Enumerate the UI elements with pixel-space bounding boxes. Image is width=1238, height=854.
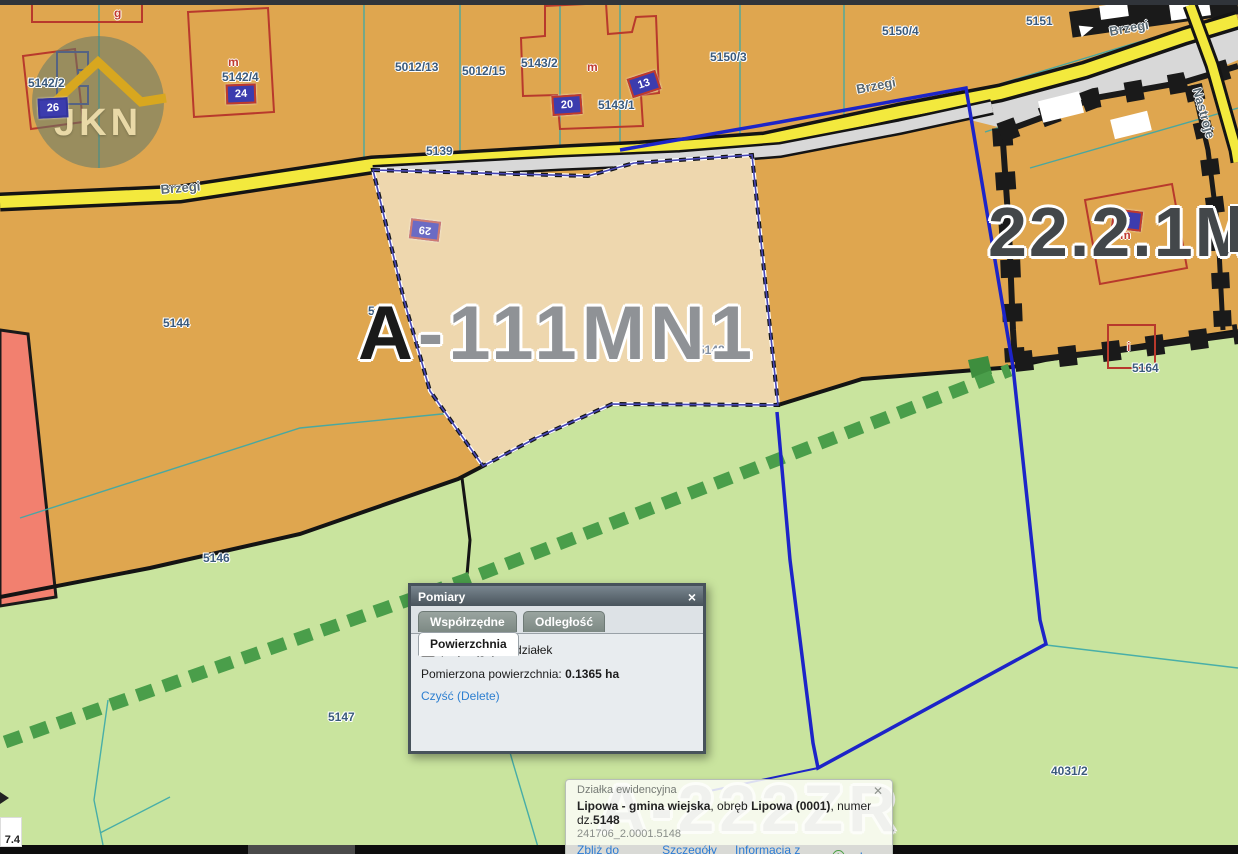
popup-type-label: Działka ewidencyjna — [577, 784, 677, 798]
zoom-to-object-link[interactable]: Zbliż do obiektu — [577, 843, 647, 854]
parcel-label-5143-2: 5143/2 — [521, 56, 558, 70]
other-link[interactable]: Inne — [860, 850, 883, 854]
building-number-24: 24 — [226, 83, 257, 104]
parcel-label-5142-2: 5142/2 — [28, 76, 65, 90]
tab-odleglosc[interactable]: Odległość — [523, 611, 605, 632]
building-number-29: 29 — [409, 218, 441, 242]
plus-icon[interactable]: + — [832, 850, 845, 854]
parcel-label-4031-2: 4031/2 — [1051, 764, 1088, 778]
parcel-label-5147: 5147 — [328, 710, 355, 724]
tab-wspolrzedne[interactable]: Współrzędne — [418, 611, 517, 632]
building-letter-g: g — [114, 6, 121, 20]
building-letter-m2: m — [587, 60, 598, 74]
parcel-label-5146: 5146 — [203, 551, 230, 565]
popup-title-part: Lipowa (0001) — [751, 799, 830, 813]
plan-info-link[interactable]: Informacja z planu — [735, 843, 817, 854]
road-number-5139: 5139 — [426, 144, 453, 158]
popup-parcel-id: 241706_2.0001.5148 — [577, 828, 883, 840]
parcel-label-5142-4: 5142/4 — [222, 70, 259, 84]
parcel-label-5144: 5144 — [163, 316, 190, 330]
popup-title-part: Lipowa - gmina wiejska — [577, 799, 710, 813]
parcel-label-5143-1: 5143/1 — [598, 98, 635, 112]
zone-label-2221mn: 22.2.1MN — [988, 192, 1238, 272]
parcel-label-5164: 5164 — [1132, 361, 1159, 375]
close-icon[interactable]: ✕ — [873, 784, 883, 798]
popup-parcel-title: Lipowa - gmina wiejska, obręb Lipowa (00… — [577, 799, 883, 827]
building-letter-i: i — [1127, 340, 1130, 354]
measure-dialog-titlebar[interactable]: Pomiary × — [411, 586, 703, 606]
zone-label-a111mn1: A-111MN1 — [358, 290, 757, 377]
popup-title-part: 5148 — [593, 813, 620, 827]
parcel-info-popup: Działka ewidencyjna ✕ Lipowa - gmina wie… — [565, 779, 893, 854]
details-link[interactable]: Szczegóły (I) — [662, 843, 720, 854]
close-icon[interactable]: × — [688, 590, 696, 604]
measure-dialog-title: Pomiary — [418, 590, 465, 604]
building-number-26: 26 — [37, 97, 68, 119]
building-number-20: 20 — [551, 94, 582, 116]
measured-area-value: 0.1365 ha — [565, 667, 619, 681]
parcel-label-5012-13: 5012/13 — [395, 60, 438, 74]
map-viewport[interactable]: JKN A-111MN1 22.2.1MN A-222ZR 5142/2 514… — [0, 0, 1238, 854]
building-letter-m1: m — [228, 55, 239, 69]
top-edge-bar — [0, 0, 1238, 5]
popup-title-part: , obręb — [710, 799, 751, 813]
tab-powierzchnia[interactable]: Powierzchnia — [418, 632, 519, 656]
parcel-label-5150-3: 5150/3 — [710, 50, 747, 64]
coordinate-readout: 7.4 — [0, 817, 22, 847]
measure-dialog: Pomiary × Współrzędne Odległość Powierzc… — [408, 583, 706, 754]
measure-dialog-tabs: Współrzędne Odległość Powierzchnia — [411, 606, 703, 634]
measured-area-label: Pomierzona powierzchnia: — [421, 667, 562, 681]
parcel-label-5150-4: 5150/4 — [882, 24, 919, 38]
clear-measurement-link[interactable]: Czyść (Delete) — [421, 689, 693, 703]
bottom-gray-segment — [248, 845, 355, 854]
parcel-label-5151: 5151 — [1026, 14, 1053, 28]
zone-label-fragment — [1230, 206, 1238, 252]
parcel-label-5012-15: 5012/15 — [462, 64, 505, 78]
